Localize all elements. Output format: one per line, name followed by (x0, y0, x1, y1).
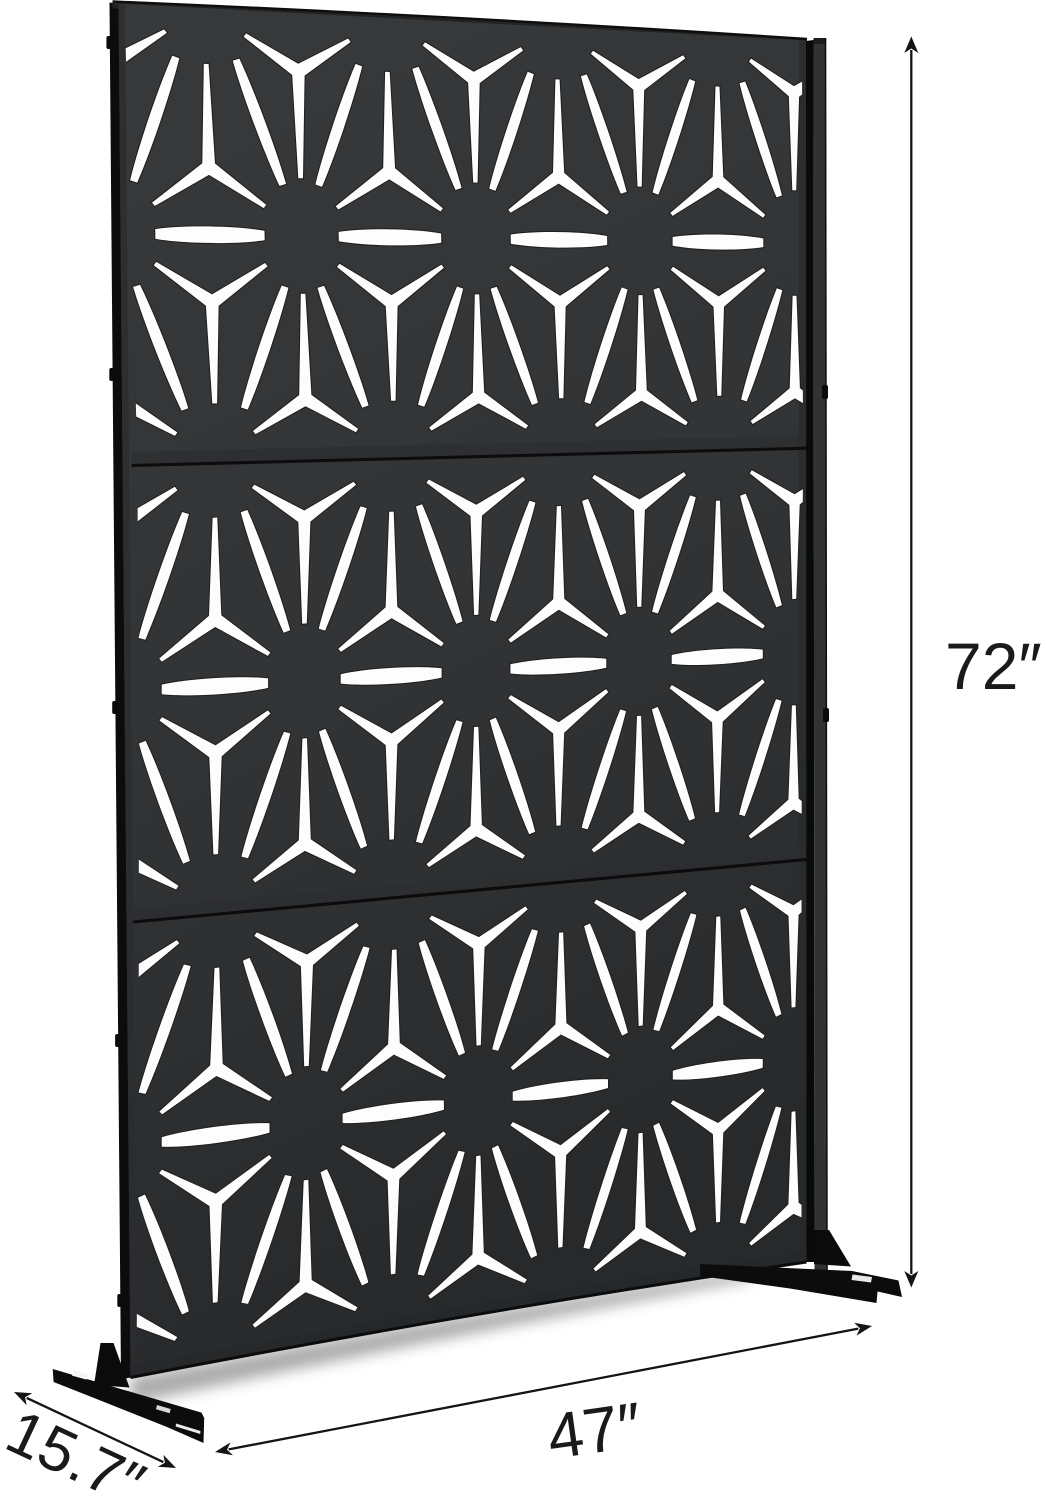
svg-text:72″: 72″ (945, 629, 1042, 703)
svg-text:47″: 47″ (543, 1389, 646, 1473)
